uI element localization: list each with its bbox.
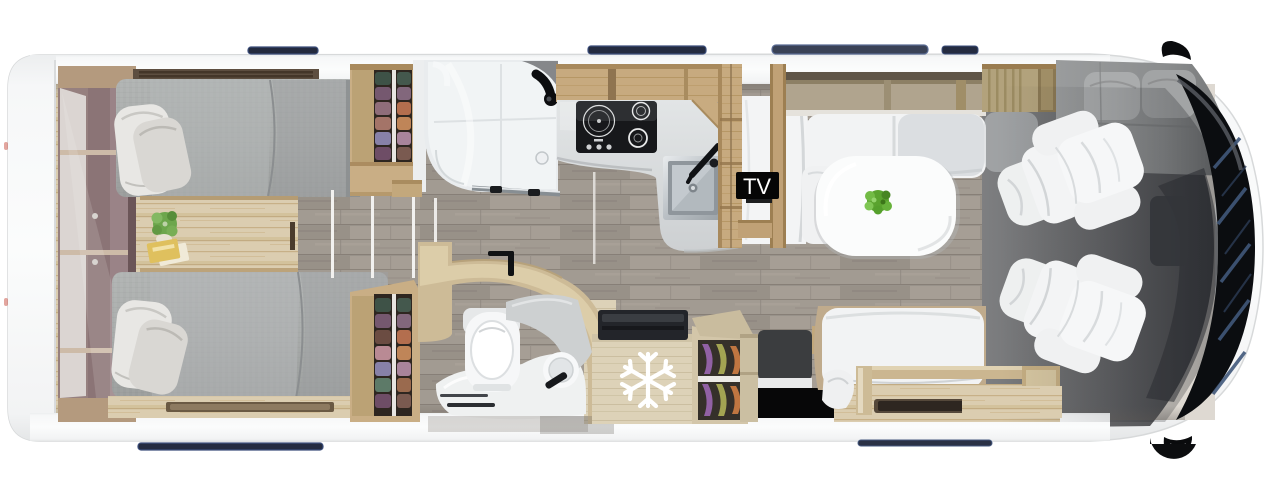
svg-text:TV: TV	[743, 174, 771, 199]
